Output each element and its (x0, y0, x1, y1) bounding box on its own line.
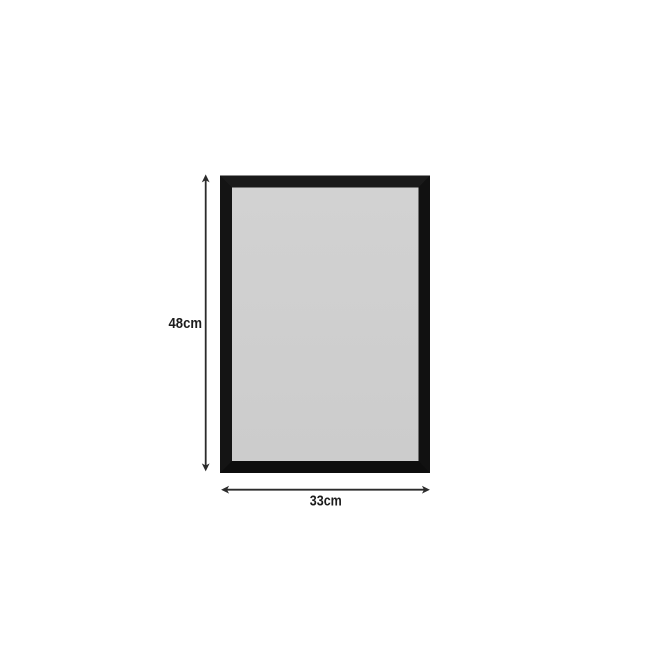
svg-text:33cm: 33cm (310, 492, 342, 509)
svg-text:48cm: 48cm (169, 315, 203, 332)
